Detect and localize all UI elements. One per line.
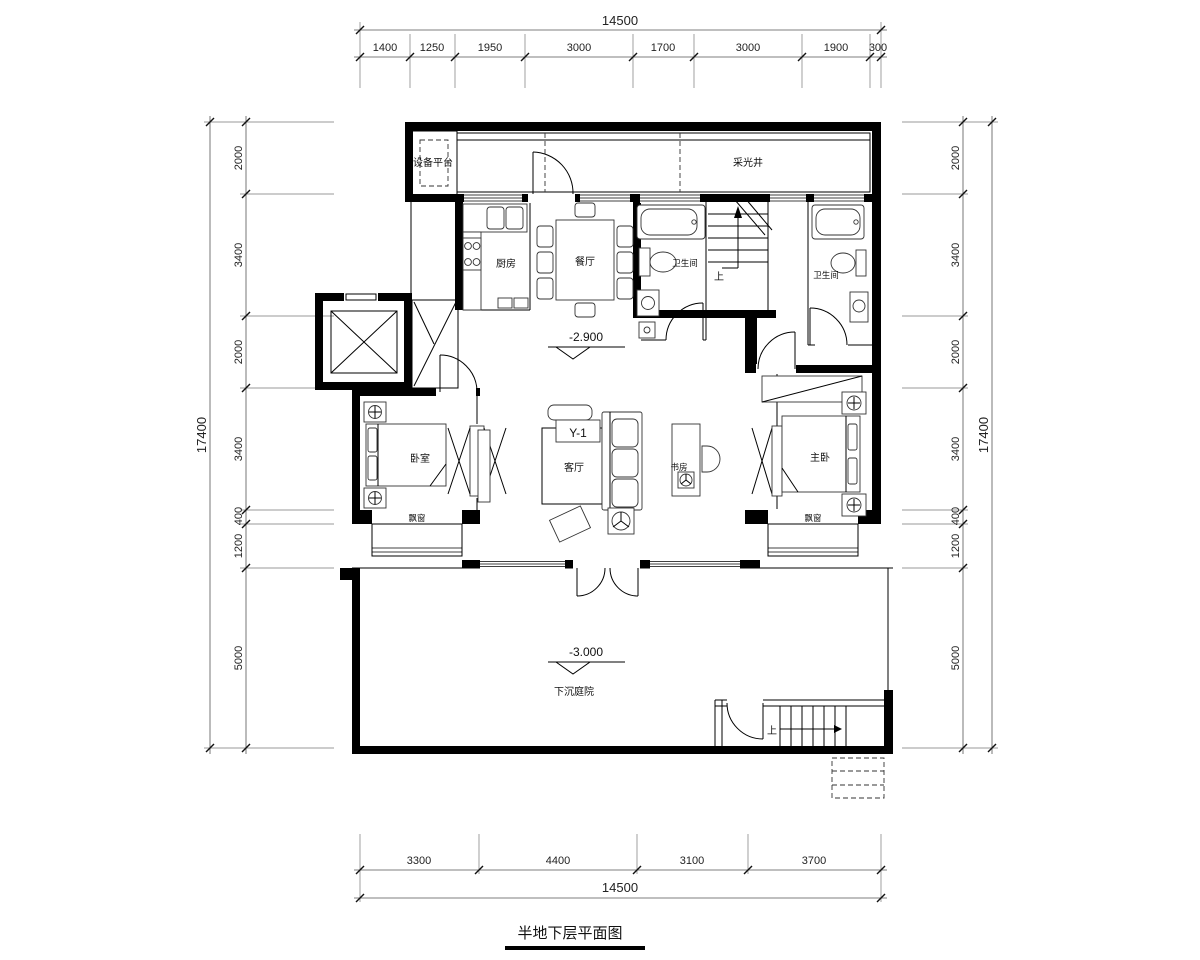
study: 书房 xyxy=(670,424,720,496)
dim-top-seg: 300 xyxy=(869,42,887,54)
duct-shaft xyxy=(412,300,458,388)
bathroom-2-label: 卫生间 xyxy=(813,270,839,280)
equipment-platform: 设备平台 xyxy=(411,131,457,300)
drawing-caption: 半地下层平面图 xyxy=(517,925,622,942)
dim-right-seg: 400 xyxy=(950,507,962,525)
level-main-value: -2.900 xyxy=(569,330,603,344)
stairs-up-exterior-label: 上 xyxy=(767,725,777,737)
dim-right-total: 17400 xyxy=(976,417,991,453)
elevator xyxy=(315,292,412,390)
dim-right-seg: 1200 xyxy=(950,534,962,558)
dimension-chain-left: 17400 2000 3400 2000 3400 400 1200 5000 xyxy=(194,116,334,754)
dim-left-seg: 5000 xyxy=(233,646,245,670)
light-well: 采光井 xyxy=(457,133,870,192)
dim-top-seg: 1250 xyxy=(420,42,444,54)
dim-left-seg: 2000 xyxy=(233,146,245,170)
master-bedroom-label: 主卧 xyxy=(810,451,830,464)
dim-left-seg: 3400 xyxy=(233,437,245,461)
dimension-chain-bottom: 3300 4400 3100 3700 14500 xyxy=(354,834,887,902)
living-room-label: 客厅 xyxy=(564,461,584,474)
dim-top-total: 14500 xyxy=(602,13,638,28)
exterior-steps-dashed xyxy=(832,758,884,798)
bay-window-right-label: 飘窗 xyxy=(804,513,821,523)
dim-bottom-seg: 3700 xyxy=(802,855,826,867)
floor-plan-sheet: 14500 1400 1250 1950 3000 1700 3000 1900… xyxy=(0,0,1200,960)
dim-bottom-seg: 4400 xyxy=(546,855,570,867)
dining-room-label: 餐厅 xyxy=(575,255,595,268)
dim-left-total: 17400 xyxy=(194,417,209,453)
light-well-label: 采光井 xyxy=(733,156,763,169)
bathroom-1: 卫生间 xyxy=(637,205,705,340)
dim-right-seg: 3400 xyxy=(950,243,962,267)
dim-left-seg: 3400 xyxy=(233,243,245,267)
kitchen-label: 厨房 xyxy=(496,257,516,270)
dim-top-seg: 1900 xyxy=(824,42,848,54)
stairs-lower: 上 xyxy=(715,700,884,746)
dining-room: 餐厅 xyxy=(537,203,633,317)
level-marker-main: -2.900 xyxy=(548,330,625,359)
kitchen: 厨房 xyxy=(463,204,528,310)
dim-left-seg: 400 xyxy=(233,507,245,525)
entry-doors xyxy=(577,568,638,596)
equipment-platform-label: 设备平台 xyxy=(413,156,453,169)
level-marker-courtyard: -3.000 xyxy=(548,645,625,674)
study-label: 书房 xyxy=(670,462,687,472)
dim-bottom-seg: 3300 xyxy=(407,855,431,867)
bathroom-1-label: 卫生间 xyxy=(672,258,698,268)
dim-left-seg: 1200 xyxy=(233,534,245,558)
dim-right-seg: 5000 xyxy=(950,646,962,670)
dimension-chain-right: 17400 2000 3400 2000 3400 400 1200 5000 xyxy=(902,116,998,754)
dim-top-seg: 3000 xyxy=(736,42,760,54)
master-bedroom: 主卧 飘窗 xyxy=(752,376,866,556)
dim-top-seg: 1400 xyxy=(373,42,397,54)
bay-window-left-label: 飘窗 xyxy=(408,513,425,523)
dim-bottom-total: 14500 xyxy=(602,880,638,895)
courtyard: -3.000 下沉庭院 上 xyxy=(548,645,884,798)
floor-plan-canvas: 14500 1400 1250 1950 3000 1700 3000 1900… xyxy=(0,0,1200,960)
dimension-chain-top: 14500 1400 1250 1950 3000 1700 3000 1900… xyxy=(354,13,887,88)
beam-tag: Y-1 xyxy=(569,426,587,440)
dim-right-seg: 3400 xyxy=(950,437,962,461)
bathroom-2: 卫生间 xyxy=(810,205,868,345)
title-block: 半地下层平面图 xyxy=(505,925,645,950)
dim-top-seg: 3000 xyxy=(567,42,591,54)
dim-top-seg: 1950 xyxy=(478,42,502,54)
stairs-upper: 上 xyxy=(708,198,772,283)
dim-right-seg: 2000 xyxy=(950,146,962,170)
bedroom-label: 卧室 xyxy=(410,452,430,465)
stairs-up-interior-label: 上 xyxy=(714,271,724,283)
dim-top-seg: 1700 xyxy=(651,42,675,54)
caption-underline xyxy=(505,946,645,950)
dim-bottom-seg: 3100 xyxy=(680,855,704,867)
dim-left-seg: 2000 xyxy=(233,340,245,364)
level-courtyard-value: -3.000 xyxy=(569,645,603,659)
dim-right-seg: 2000 xyxy=(950,340,962,364)
courtyard-label: 下沉庭院 xyxy=(554,685,594,698)
